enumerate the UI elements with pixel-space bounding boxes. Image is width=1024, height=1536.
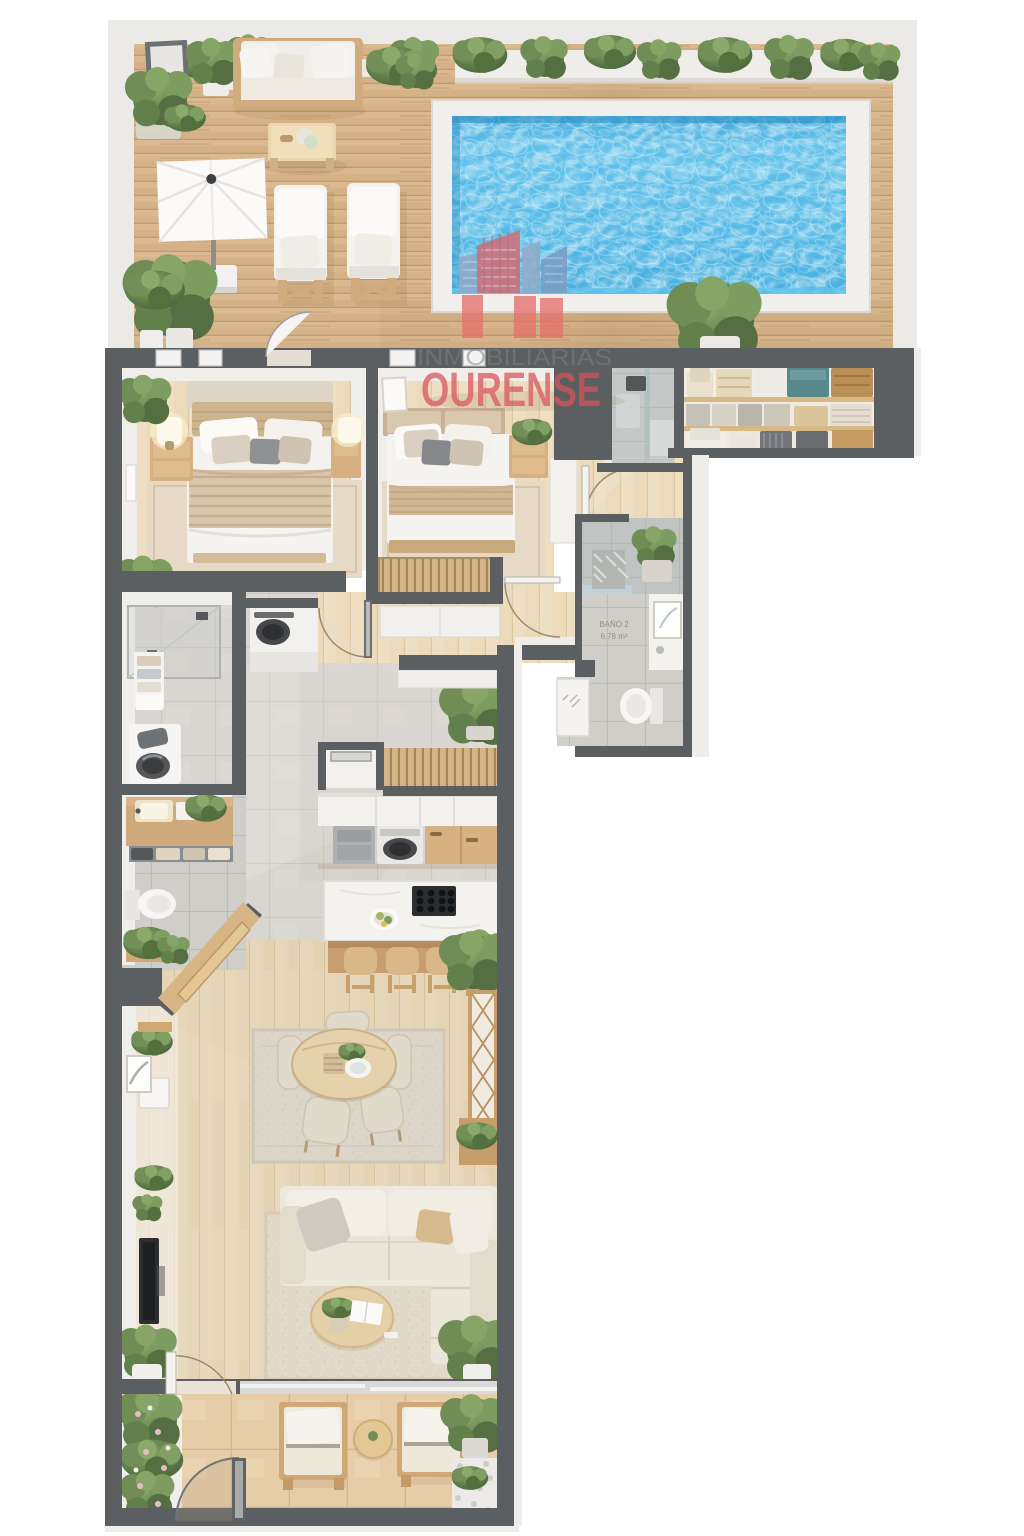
svg-text:OURENSE: OURENSE xyxy=(421,364,601,417)
svg-text:BAÑO 2: BAÑO 2 xyxy=(599,620,629,629)
svg-text:6,78 m²: 6,78 m² xyxy=(600,632,627,641)
